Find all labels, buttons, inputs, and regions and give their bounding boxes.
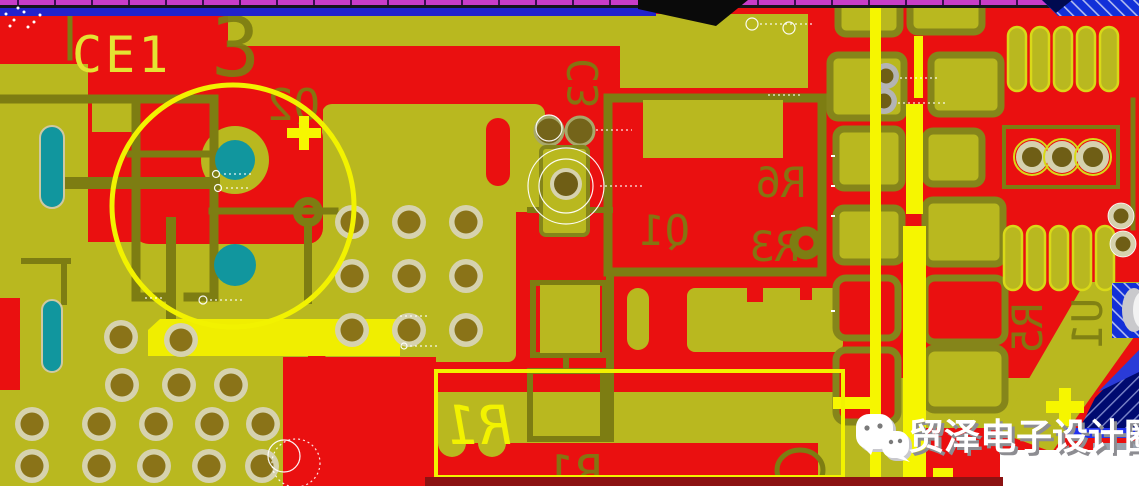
connector-holes bbox=[1014, 139, 1111, 175]
maroon-strip bbox=[425, 477, 1003, 486]
pcb-canvas[interactable]: 3 Q2 C3 R6 Q1 R3 R1 R5 U1 bbox=[0, 0, 1139, 486]
q1-pad bbox=[643, 100, 783, 158]
pad-fill bbox=[540, 285, 600, 353]
designator-q1: Q1 bbox=[639, 206, 690, 255]
watermark-text: 贸泽电子设计圈 bbox=[908, 417, 1139, 458]
designator-r1-silk: R1 bbox=[440, 393, 516, 457]
designator-r3: R3 bbox=[749, 222, 800, 271]
designator-u1: U1 bbox=[1063, 298, 1112, 349]
designator-r5: R5 bbox=[1003, 303, 1052, 354]
designator-c3: C3 bbox=[559, 58, 608, 109]
designator-r6: R6 bbox=[755, 158, 806, 207]
designator-ce1: CE1 bbox=[72, 26, 171, 84]
designator-q2: Q2 bbox=[267, 80, 320, 131]
trace-blue-bar bbox=[0, 8, 656, 16]
pcb-editor-viewport[interactable]: 3 Q2 C3 R6 Q1 R3 R1 R5 U1 bbox=[0, 0, 1139, 486]
